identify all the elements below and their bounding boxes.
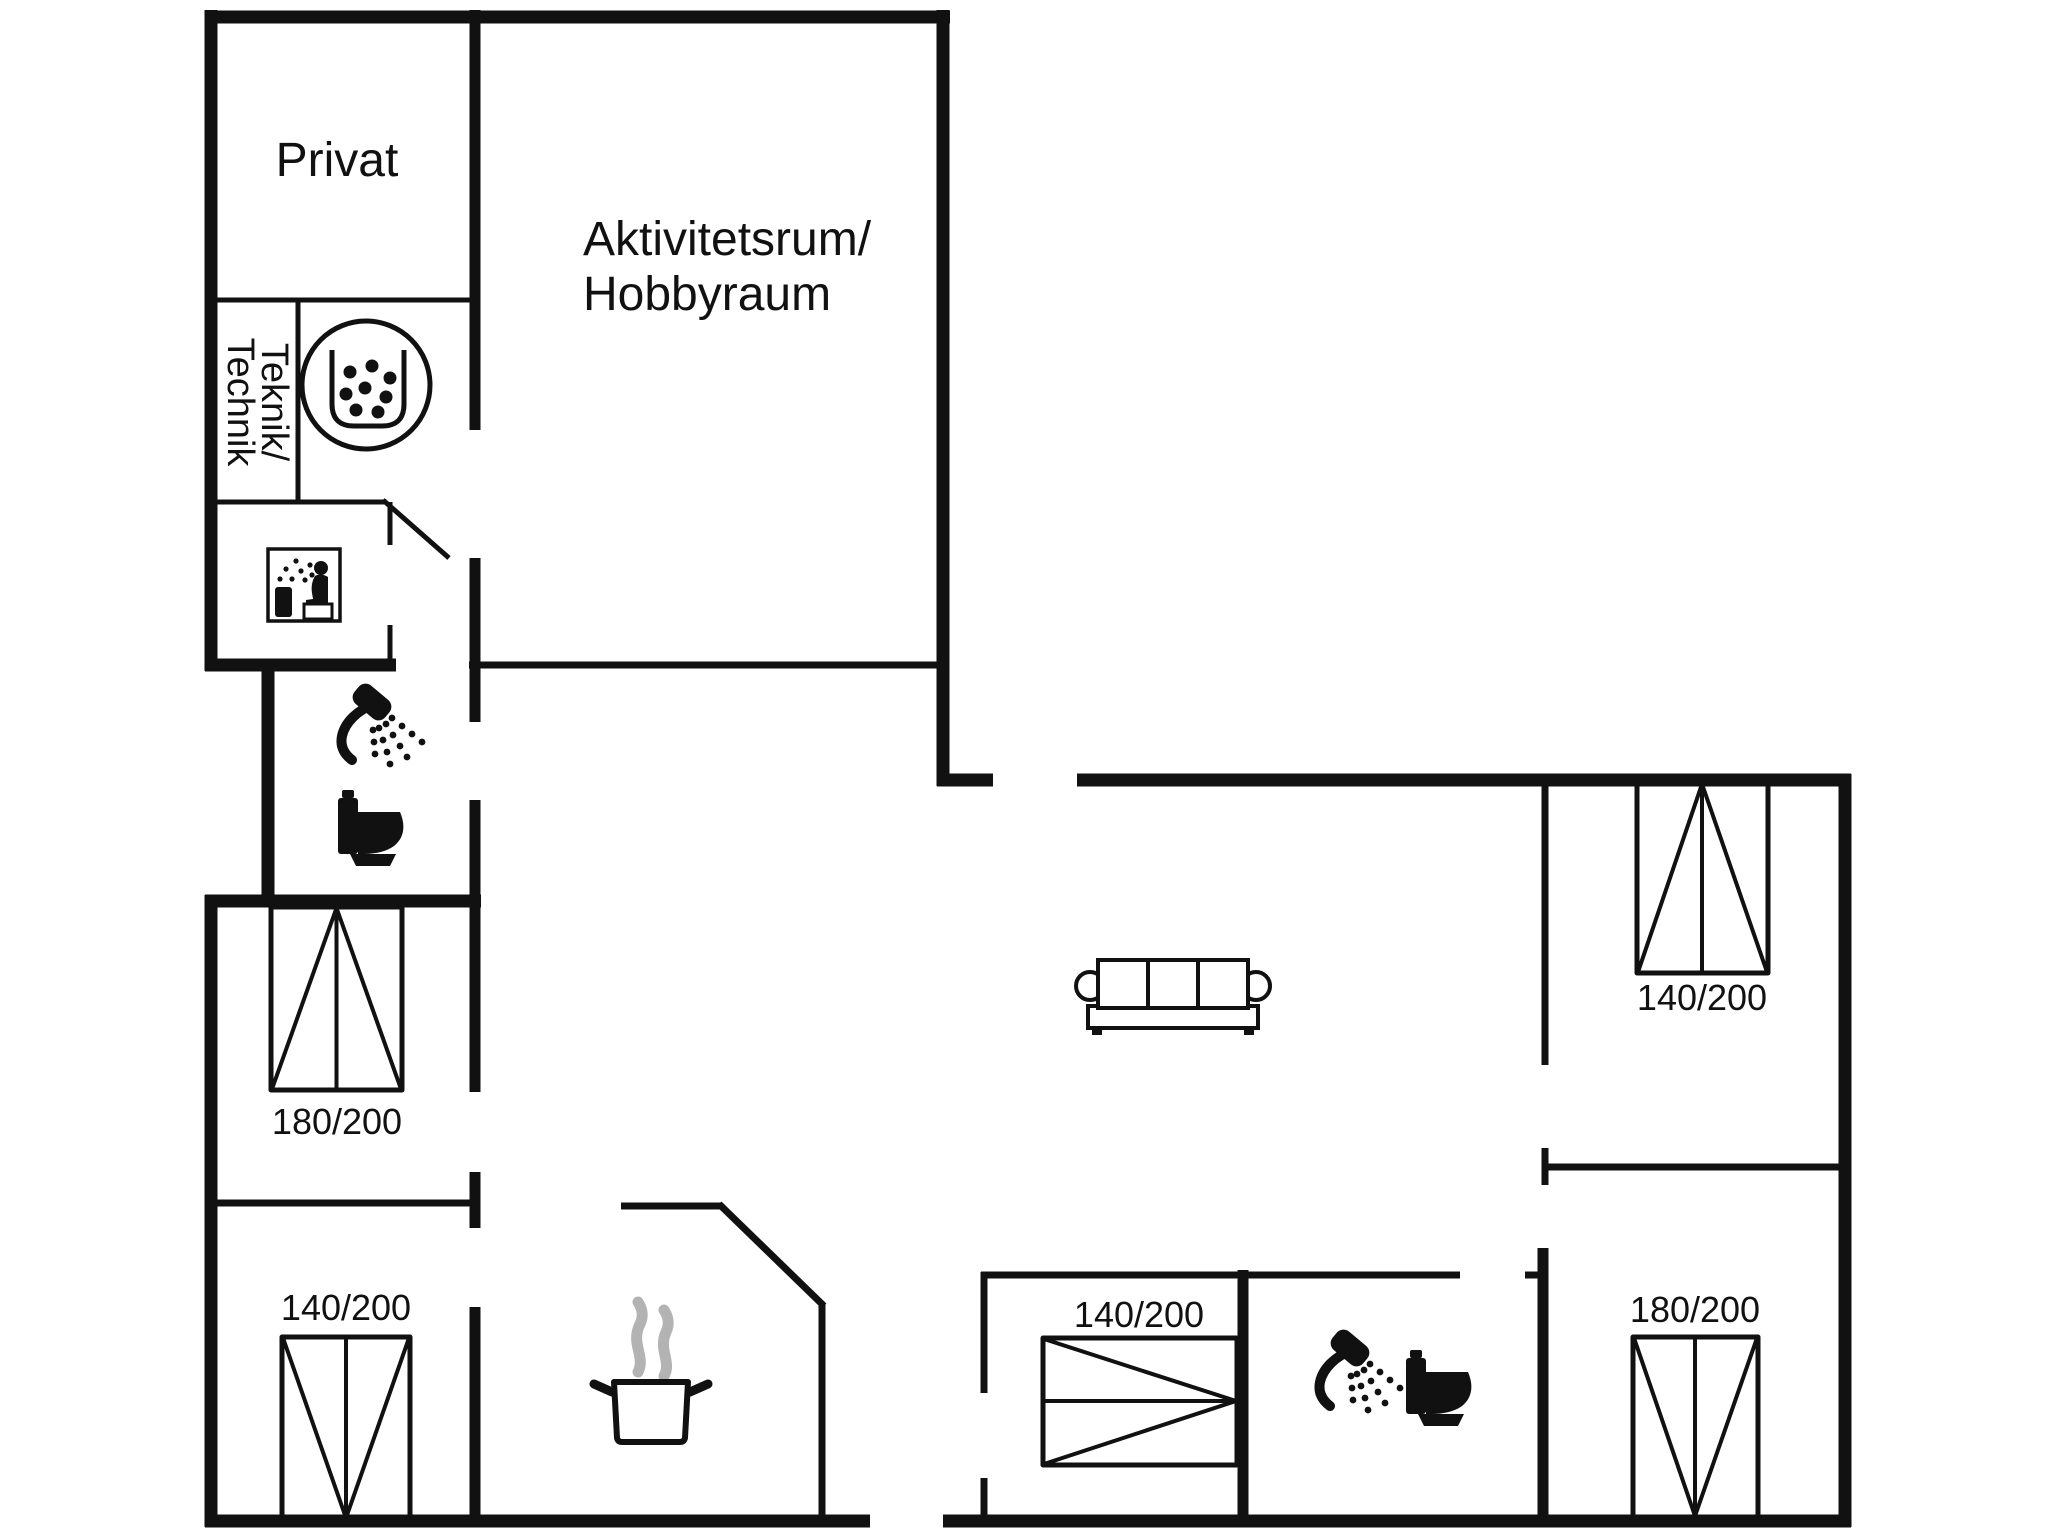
bed-symbol — [1637, 783, 1768, 973]
bed-size-label: 140/200 — [1637, 977, 1767, 1018]
room-label-activity-line2: Hobbyraum — [583, 268, 831, 321]
whirlpool-icon — [302, 321, 430, 449]
room-label-privat: Privat — [276, 134, 399, 187]
bed-symbol — [1633, 1337, 1758, 1517]
steam-icon — [637, 1302, 669, 1376]
shower-icon — [1319, 1326, 1403, 1413]
bed-symbol — [271, 907, 402, 1090]
shower-icon — [341, 680, 425, 767]
bed-symbol — [282, 1337, 410, 1519]
toilet-icon — [338, 790, 403, 866]
bed-size-label: 180/200 — [1630, 1289, 1760, 1330]
room-label-technical-line2: Technik — [219, 338, 261, 468]
sauna-icon — [268, 549, 340, 621]
floor-plan: Privat Aktivitetsrum/ Hobbyraum Teknik/ … — [0, 0, 2048, 1536]
sofa-icon — [1076, 960, 1270, 1035]
bed-symbol — [1043, 1338, 1237, 1465]
toilet-icon — [1406, 1350, 1471, 1426]
bed-size-label: 180/200 — [272, 1101, 402, 1142]
walls — [205, 10, 1851, 1527]
room-label-activity-line1: Aktivitetsrum/ — [583, 213, 872, 266]
bed-size-label: 140/200 — [281, 1287, 411, 1328]
cooking-pot-icon — [594, 1302, 708, 1442]
bed-size-label: 140/200 — [1074, 1294, 1204, 1335]
floor-plan-page: Privat Aktivitetsrum/ Hobbyraum Teknik/ … — [0, 0, 2048, 1536]
